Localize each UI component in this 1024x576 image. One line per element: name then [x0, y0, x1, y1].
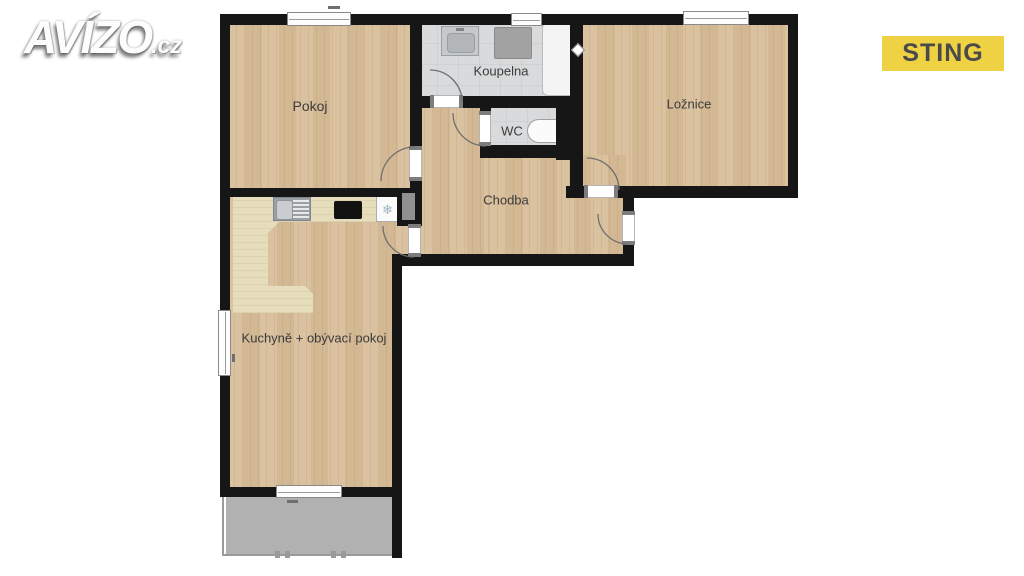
sting-badge: STING	[882, 36, 1004, 71]
avizo-logo-suffix: .cz	[151, 32, 182, 58]
railing-post	[275, 551, 280, 558]
washing-machine	[494, 27, 532, 59]
balcony-railing	[222, 490, 224, 556]
sink-drainer	[293, 200, 309, 218]
living-right-wall	[392, 254, 402, 558]
door-wc	[479, 111, 491, 146]
fridge: ❄	[376, 196, 399, 222]
window-living-left	[218, 310, 231, 376]
snowflake-icon: ❄	[382, 203, 393, 216]
avizo-logo-text: AVÍZO	[24, 11, 151, 63]
railing-post	[331, 551, 336, 558]
window-koupelna	[511, 13, 542, 26]
chodba-bottom-wall	[396, 254, 634, 266]
wc-bottom-wall	[480, 145, 571, 158]
door-kitchen	[408, 224, 421, 257]
room-label-chodba: Chodba	[483, 193, 529, 208]
outer-wall-left	[220, 14, 230, 497]
vent-mark	[232, 354, 235, 362]
kitchen-sink	[273, 197, 311, 221]
vent-mark	[287, 500, 298, 503]
balcony-french-door	[276, 485, 342, 498]
vent-mark	[328, 6, 340, 9]
faucet	[456, 28, 464, 31]
bathroom-sink	[441, 26, 479, 56]
balcony-railing	[222, 554, 394, 556]
chodba-floor	[489, 155, 629, 260]
room-label-loznice: Ložnice	[667, 97, 712, 112]
basin	[447, 33, 475, 53]
room-label-koupelna: Koupelna	[474, 64, 529, 79]
shaft	[402, 193, 415, 220]
room-label-pokoj: Pokoj	[292, 98, 327, 114]
koupelna-loznice-wall	[570, 14, 583, 198]
stove	[334, 201, 362, 219]
railing-post	[341, 551, 346, 558]
balcony-floor	[226, 494, 396, 556]
room-label-kuchyne: Kuchyně + obývací pokoj	[242, 331, 387, 346]
door-entrance	[622, 211, 635, 245]
window-loznice	[683, 11, 749, 25]
sink-basin	[276, 200, 293, 220]
floor-plan-image: ❄	[0, 0, 1024, 576]
door-loznice	[584, 185, 618, 198]
pokoj-bottom-wall	[220, 188, 422, 197]
outer-wall-right-loznice	[788, 14, 798, 198]
door-koupelna	[430, 95, 463, 108]
room-label-wc: WC	[501, 124, 523, 139]
toilet	[527, 119, 559, 143]
avizo-logo: AVÍZO.cz	[24, 10, 182, 64]
door-pokoj	[409, 146, 422, 181]
window-pokoj	[287, 12, 351, 26]
railing-post	[285, 551, 290, 558]
